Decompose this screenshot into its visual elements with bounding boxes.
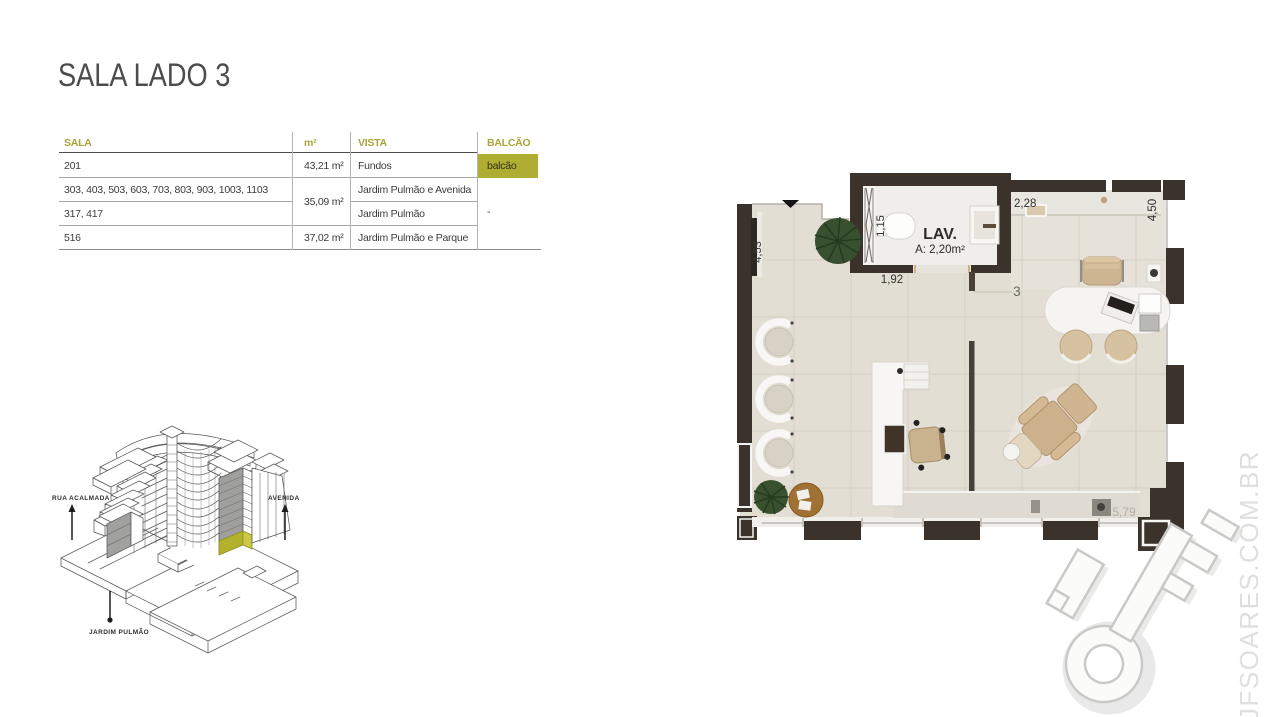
svg-text:1,15: 1,15 bbox=[875, 215, 887, 236]
svg-text:JFSOARES.COM.BR: JFSOARES.COM.BR bbox=[1234, 450, 1264, 717]
svg-text:JARDIM PULMÃO: JARDIM PULMÃO bbox=[89, 627, 149, 636]
svg-text:AVENIDA: AVENIDA bbox=[268, 495, 300, 502]
svg-text:A: 2,20m²: A: 2,20m² bbox=[915, 244, 965, 256]
svg-text:2,28: 2,28 bbox=[1014, 198, 1036, 210]
svg-text:4,50: 4,50 bbox=[1147, 199, 1159, 221]
svg-text:3: 3 bbox=[1013, 283, 1021, 299]
svg-text:LAV.: LAV. bbox=[923, 226, 957, 243]
svg-text:RUA ACALMADA: RUA ACALMADA bbox=[52, 495, 110, 502]
svg-text:4,53: 4,53 bbox=[752, 241, 764, 262]
svg-text:5,79: 5,79 bbox=[1112, 505, 1136, 519]
svg-text:1,92: 1,92 bbox=[881, 274, 903, 286]
